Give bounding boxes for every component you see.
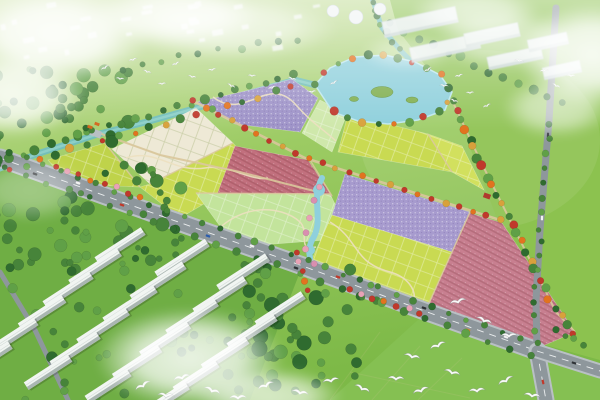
field-division-path xyxy=(196,193,330,194)
rendering-canvas xyxy=(0,0,600,400)
cloud xyxy=(435,10,575,70)
cloud xyxy=(360,34,456,70)
car xyxy=(541,216,543,221)
aerial-masterplan-rendering xyxy=(0,0,600,400)
